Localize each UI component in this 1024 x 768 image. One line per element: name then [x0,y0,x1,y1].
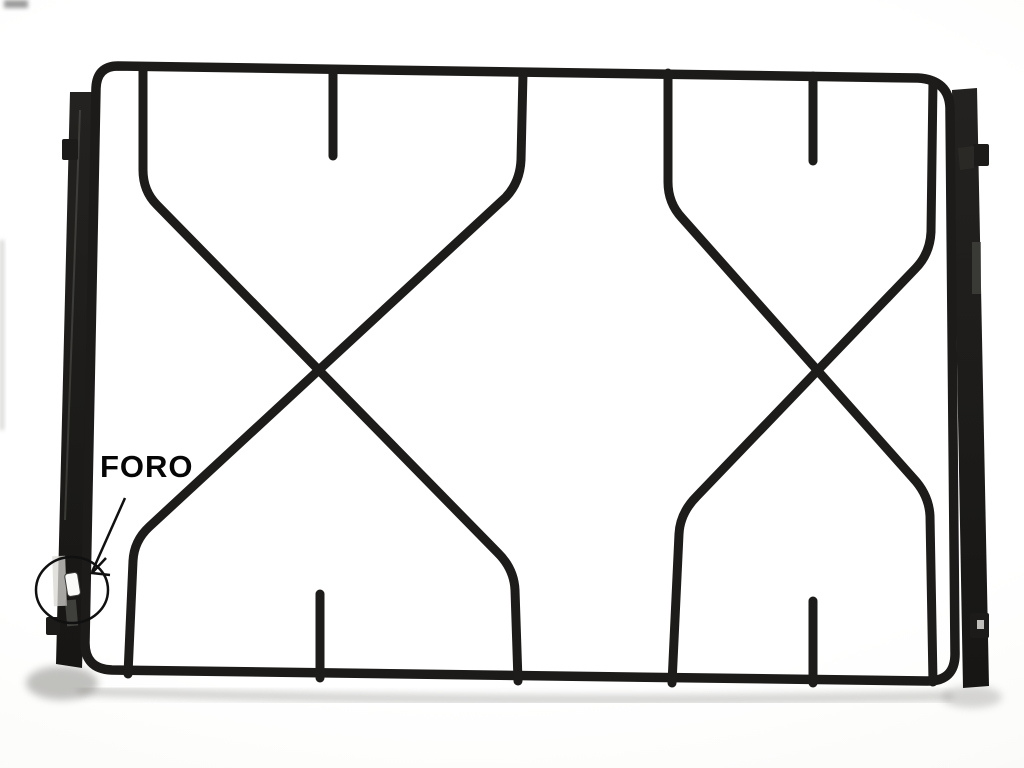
right-cross-support [668,73,933,683]
left-rail-top-tab [62,139,78,160]
right-rail-marks [972,242,981,294]
corner-shadow-right [942,686,1002,708]
annotation-label: FORO [100,449,194,485]
right-rail-top-clip-face [958,146,974,170]
grate-drop-shadow [78,691,952,700]
left-cross-support [128,69,523,681]
right-cross-wire-b [672,81,933,683]
photo-shadows [0,0,1002,708]
corner-shadow-left [26,666,98,700]
right-rail-top-clip [973,144,989,166]
right-cross-wire-a [668,73,933,682]
left-cross-wire-a [143,69,518,681]
product-photo: FORO [0,0,1024,768]
photo-edge-smudge [4,0,28,8]
right-rail-clip-notch [977,620,984,629]
grate-illustration [0,0,1024,768]
photo-edge-line [0,240,4,430]
left-rail-worn-patch [52,556,67,606]
annotation-arrow-shaft [92,498,125,572]
